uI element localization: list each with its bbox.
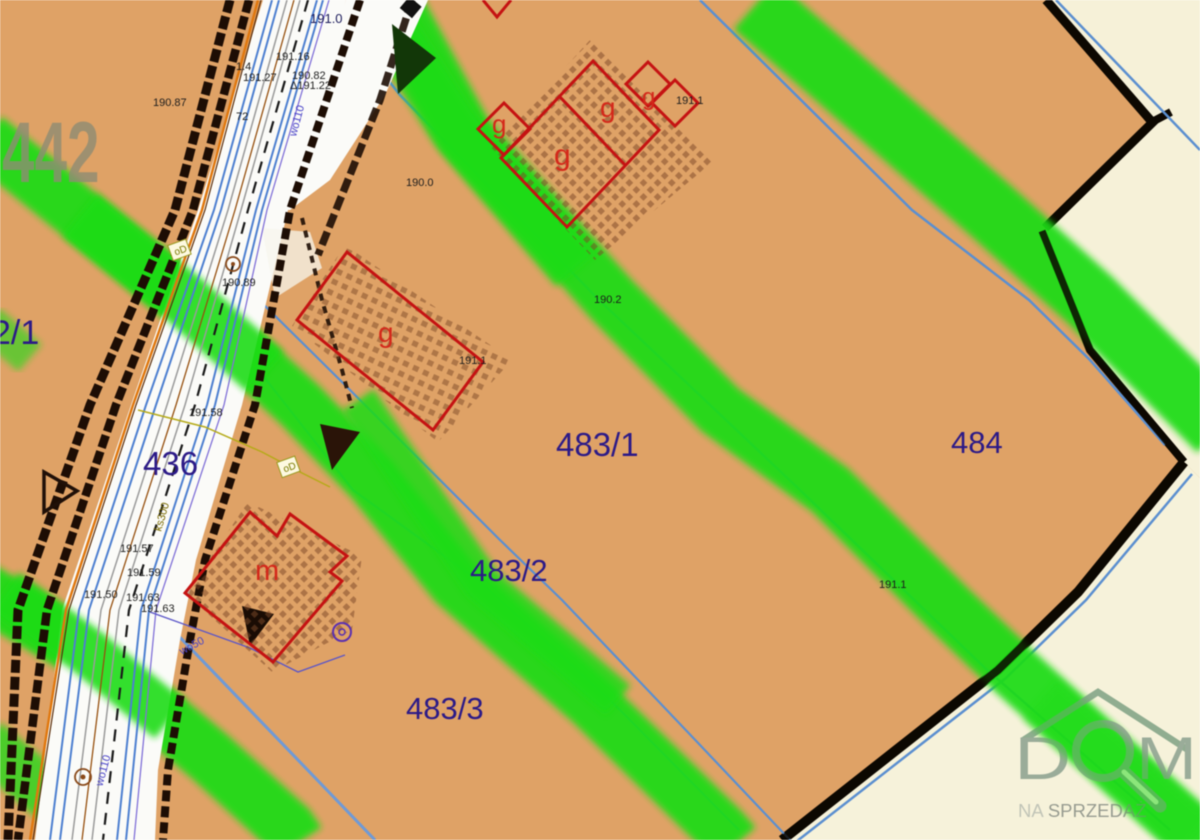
svg-text:191.59: 191.59 (127, 567, 161, 579)
svg-text:191.1: 191.1 (459, 355, 487, 367)
svg-text:72: 72 (236, 111, 248, 123)
svg-text:190.2: 190.2 (594, 294, 622, 306)
svg-text:436: 436 (143, 445, 198, 482)
svg-text:Δ191.22: Δ191.22 (290, 80, 331, 92)
svg-text:g: g (600, 92, 616, 123)
svg-text:484: 484 (951, 425, 1003, 460)
svg-text:g: g (492, 109, 506, 139)
svg-text:191.57: 191.57 (120, 543, 154, 555)
svg-text:483/1: 483/1 (556, 426, 639, 463)
svg-text:191.63: 191.63 (141, 603, 175, 615)
svg-text:190.89: 190.89 (222, 277, 256, 289)
svg-text:g: g (554, 139, 571, 172)
svg-text:g: g (378, 317, 394, 348)
svg-text:191.58: 191.58 (189, 407, 223, 419)
svg-text:483/2: 483/2 (470, 553, 548, 588)
svg-text:191.1: 191.1 (879, 579, 907, 591)
svg-text:191.50: 191.50 (84, 589, 118, 601)
svg-text:483/3: 483/3 (406, 691, 484, 726)
svg-text:190.0: 190.0 (406, 177, 434, 189)
svg-text:m: m (255, 555, 279, 587)
svg-text:2/1: 2/1 (0, 314, 39, 352)
svg-text:191.1: 191.1 (676, 95, 704, 107)
svg-text:190.87: 190.87 (153, 97, 187, 109)
svg-text:191.0: 191.0 (310, 11, 343, 26)
svg-text:191.16: 191.16 (276, 51, 310, 63)
svg-text:191.27: 191.27 (243, 72, 277, 84)
svg-text:g: g (642, 84, 655, 111)
svg-text:442: 442 (2, 104, 100, 201)
